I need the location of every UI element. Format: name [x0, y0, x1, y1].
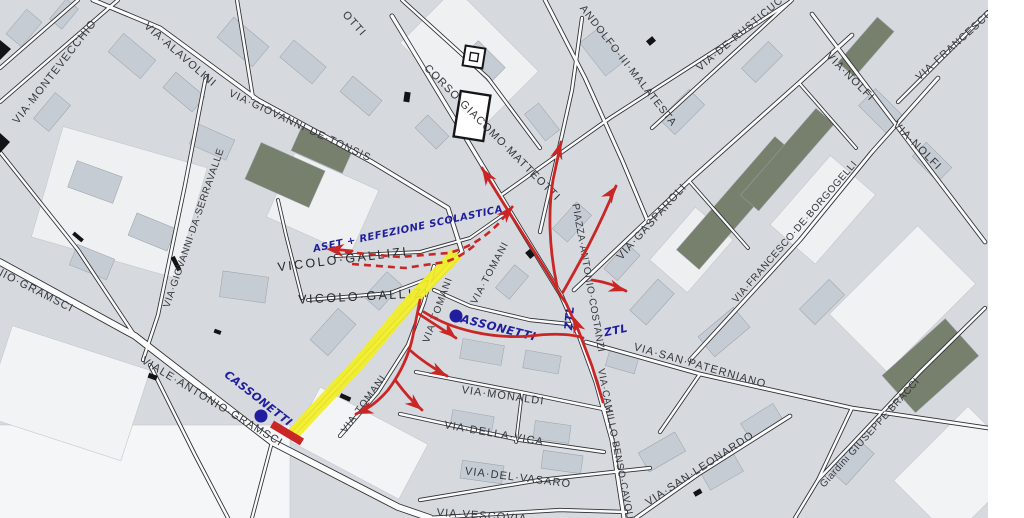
- city-map: VIA·MONTEVECCHIOVIA·ALAVOLINIVIA·GIOVANN…: [0, 0, 1024, 518]
- scanned-map-page: VIA·MONTEVECCHIOVIA·ALAVOLINIVIA·GIOVANN…: [0, 0, 1024, 518]
- cassonetti-dot: [255, 410, 268, 423]
- scan-margin: [988, 0, 1024, 518]
- cassonetti-dot: [450, 310, 463, 323]
